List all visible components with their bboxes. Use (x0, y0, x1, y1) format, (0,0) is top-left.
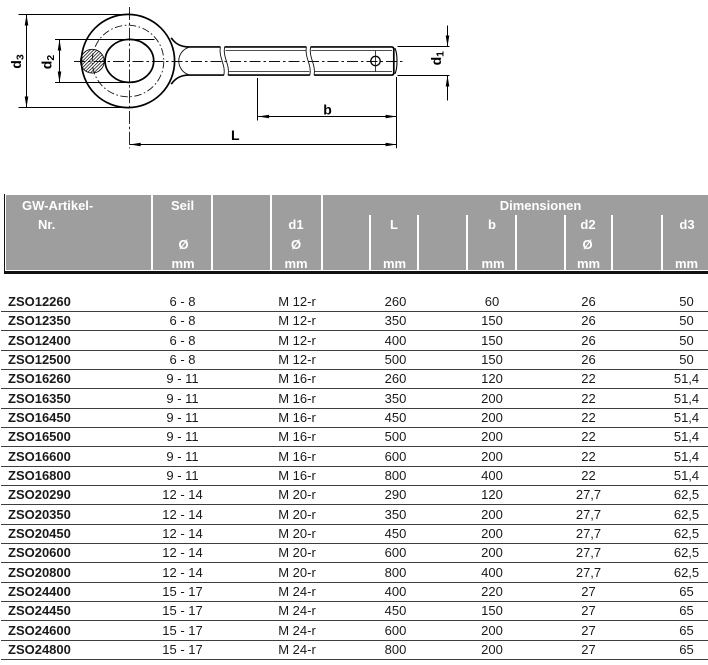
svg-text:d1: d1 (428, 51, 447, 66)
svg-text:d2: d2 (39, 55, 58, 70)
svg-text:d3: d3 (8, 54, 27, 69)
svg-text:L: L (231, 127, 240, 143)
svg-text:b: b (323, 101, 332, 117)
